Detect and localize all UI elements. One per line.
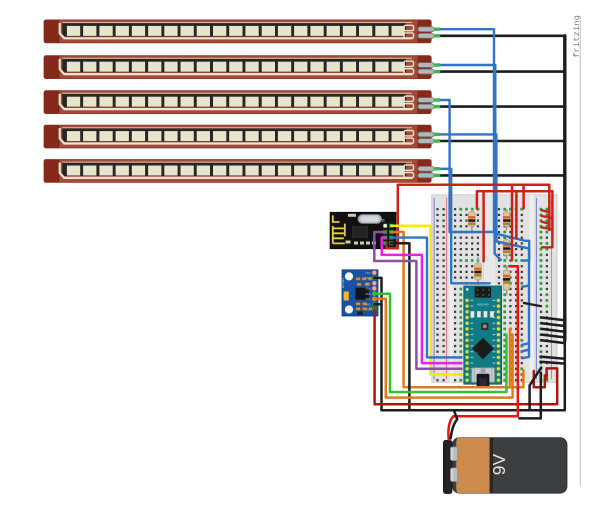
svg-text:XDA: XDA — [365, 293, 370, 296]
svg-text:ARDUINO: ARDUINO — [477, 303, 489, 307]
svg-text:INT: INT — [366, 309, 371, 312]
svg-text:AD0: AD0 — [366, 303, 371, 306]
svg-text:SDA: SDA — [365, 288, 370, 291]
svg-text:GY-521: GY-521 — [341, 278, 345, 288]
svg-text:GND: GND — [365, 277, 371, 280]
svg-text:9V: 9V — [489, 453, 509, 475]
svg-text:fritzing: fritzing — [572, 15, 582, 58]
svg-text:SCL: SCL — [366, 282, 371, 285]
svg-text:VCC: VCC — [365, 272, 370, 275]
svg-text:XCL: XCL — [366, 298, 371, 301]
